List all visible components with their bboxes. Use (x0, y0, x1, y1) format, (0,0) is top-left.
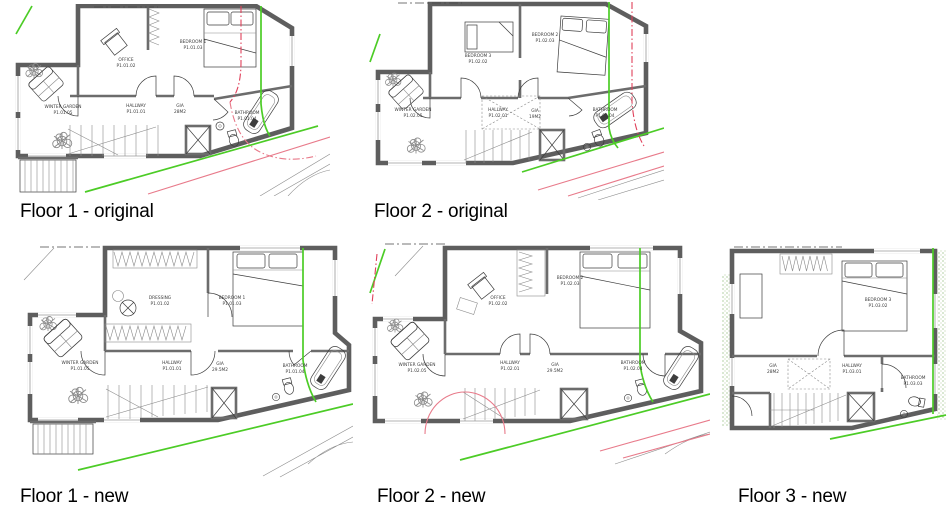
stairs (770, 393, 846, 428)
label-office: OFFICE (118, 57, 134, 63)
label-office-code: P1.01.02 (117, 63, 136, 69)
wardrobe-hatch (517, 250, 545, 296)
label-winter-garden: WINTER GARDEN (62, 360, 99, 366)
outer-walls (732, 251, 935, 428)
desk-icon (740, 274, 762, 318)
label-bathroom-code: P1.01.04 (238, 116, 257, 122)
label-bedroom3-code: P1.03.02 (869, 303, 888, 309)
plant-icon (414, 392, 432, 408)
label-hallway: HALLWAY (842, 363, 862, 369)
bed-icon (557, 16, 609, 75)
caption-floor-3-new: Floor 3 - new (738, 486, 846, 508)
label-gia-value: 19M2 (529, 114, 541, 120)
label-gia: GIA (176, 103, 184, 109)
caption-floor-1-new: Floor 1 - new (20, 486, 128, 508)
interior-walls (445, 248, 701, 419)
label-dressing: DRESSING (149, 295, 171, 301)
stairs (464, 130, 532, 163)
room-labels: OFFICE P1.02.02 BEDROOM 2 P1.02.03 WINTE… (399, 275, 646, 374)
office-chair-icon (101, 28, 129, 56)
neighbor-outline (615, 432, 710, 464)
label-bedroom2: BEDROOM 2 (557, 275, 584, 281)
label-bedroom2-code: P1.02.03 (561, 281, 580, 287)
plant-icon (69, 387, 88, 404)
outer-walls (378, 4, 646, 163)
planting-strip (937, 250, 946, 420)
interior-walls (423, 4, 646, 160)
plan-floor-2-original: BEDROOM 3 P1.02.02 BEDROOM 2 P1.02.03 WI… (368, 0, 664, 200)
label-gia-value: 29.5M2 (212, 367, 228, 373)
wardrobe-hatch (149, 9, 159, 45)
windows (18, 36, 292, 156)
interior-walls (105, 248, 349, 418)
caption-floor-1-original: Floor 1 - original (20, 201, 154, 223)
label-wg-code: P1.02.05 (408, 368, 427, 374)
sink-icon (272, 393, 279, 400)
label-bathroom: BATHROOM (283, 363, 308, 369)
room-labels: BEDROOM 3 P1.03.02 GIA 28M2 HALLWAY P1.0… (767, 297, 926, 387)
single-bed-icon (465, 22, 513, 52)
shaft-x (561, 389, 587, 419)
label-bathroom: BATHROOM (621, 360, 646, 366)
label-bedroom2: BEDROOM 2 (532, 32, 559, 38)
entry-deck-steps (30, 422, 96, 454)
toilet-icon (908, 396, 925, 408)
label-hallway: HALLWAY (126, 103, 146, 109)
label-hallway: HALLWAY (162, 360, 182, 366)
sofa-icon (43, 318, 84, 358)
plan-floor-1-new: DRESSING P1.01.02 BEDROOM 1 P1.01.03 WIN… (8, 238, 353, 478)
stairs (68, 125, 158, 156)
windows (732, 251, 935, 394)
label-winter-garden: WINTER GARDEN (399, 362, 436, 368)
label-hallway-code: P1.01.01 (163, 366, 182, 372)
label-hallway-code: P1.03.01 (843, 369, 862, 375)
sofa-icon (28, 66, 65, 103)
outer-walls (18, 6, 292, 156)
label-hallway: HALLWAY (488, 107, 508, 113)
label-gia-value: 28M2 (767, 369, 779, 375)
label-bedroom: BEDROOM 1 (219, 295, 246, 301)
label-gia-value: 29.5M2 (547, 368, 563, 374)
label-bathroom: BATHROOM (593, 107, 618, 113)
bed-icon (204, 9, 256, 67)
plant-icon (53, 132, 72, 149)
round-table-icon (113, 291, 137, 317)
site-line-corner (395, 246, 423, 276)
label-bathroom: BATHROOM (901, 375, 926, 381)
wardrobe-hatch (780, 254, 832, 274)
shaft-x (186, 126, 210, 154)
label-wg-code: P1.02.05 (404, 113, 423, 119)
door-arcs (732, 330, 906, 416)
plan-floor-2-new: OFFICE P1.02.02 BEDROOM 2 P1.02.03 WINTE… (365, 236, 710, 476)
floor-plans-sheet: OFFICE P1.01.02 BEDROOM 1 P1.01.03 WINTE… (0, 0, 952, 512)
label-office: OFFICE (490, 295, 506, 301)
label-gia: GIA (216, 361, 224, 367)
label-winter-garden: WINTER GARDEN (45, 104, 82, 110)
boundary-lines (370, 248, 710, 460)
shaft-x (848, 393, 874, 421)
label-gia: GIA (769, 363, 777, 369)
label-bedroom-code: P1.01.03 (223, 301, 242, 307)
label-bedroom3-code: P1.02.02 (469, 59, 488, 65)
caption-floor-2-new: Floor 2 - new (377, 486, 485, 508)
label-winter-garden: WINTER GARDEN (395, 107, 432, 113)
label-gia: GIA (551, 362, 559, 368)
label-bedroom3: BEDROOM 3 (465, 53, 492, 59)
label-dressing-code: P1.01.02 (151, 301, 170, 307)
boundary-lines (78, 248, 353, 470)
hallway-hatch-box (788, 359, 830, 389)
label-wg-code: P1.01.05 (71, 366, 90, 372)
label-gia: GIA (531, 108, 539, 114)
label-bathroom-code: P1.01.04 (286, 369, 305, 375)
label-bathroom-code: P1.02.04 (624, 366, 643, 372)
label-hallway: HALLWAY (500, 360, 520, 366)
caption-floor-2-original: Floor 2 - original (374, 201, 508, 223)
windows (375, 248, 680, 421)
label-wg-code: P1.01.05 (54, 110, 73, 116)
bathtub-icon (661, 344, 701, 392)
sink-icon (216, 122, 224, 130)
neighbor-outline (260, 154, 330, 196)
site-line-corner (24, 248, 54, 280)
room-labels: DRESSING P1.01.02 BEDROOM 1 P1.01.03 WIN… (62, 295, 308, 375)
entry-deck-steps (18, 158, 78, 192)
neighbor-outline (263, 426, 353, 477)
door-arcs (81, 293, 311, 375)
bed-icon (233, 252, 303, 326)
label-hallway-code: P1.01.01 (127, 109, 146, 115)
desk-icon (457, 298, 478, 315)
plan-floor-3-new: BEDROOM 3 P1.03.02 GIA 28M2 HALLWAY P1.0… (722, 236, 950, 471)
plant-icon (407, 138, 425, 154)
label-bathroom-code: P1.02.04 (596, 113, 615, 119)
label-bedroom-code: P1.01.03 (184, 45, 203, 51)
label-hallway-code: P1.02.01 (501, 366, 520, 372)
boundary-lines (16, 6, 330, 194)
shaft-x (212, 388, 236, 418)
toilet-icon (282, 378, 295, 396)
label-bathroom-code: P1.03.03 (904, 381, 923, 387)
label-gia-value: 28M2 (174, 109, 186, 115)
sink-icon (624, 394, 631, 401)
label-office-code: P1.02.02 (489, 301, 508, 307)
label-bedroom3: BEDROOM 3 (865, 297, 892, 303)
label-bedroom2-code: P1.02.03 (536, 38, 555, 44)
label-bathroom: BATHROOM (235, 110, 260, 116)
plan-floor-1-original: OFFICE P1.01.02 BEDROOM 1 P1.01.03 WINTE… (8, 4, 330, 196)
sofa-icon (390, 321, 431, 361)
label-bedroom: BEDROOM 1 (180, 39, 207, 45)
bed-icon (842, 261, 907, 331)
plant-icon (385, 73, 400, 87)
stairs (106, 385, 208, 419)
label-hallway-code: P1.02.01 (489, 113, 508, 119)
